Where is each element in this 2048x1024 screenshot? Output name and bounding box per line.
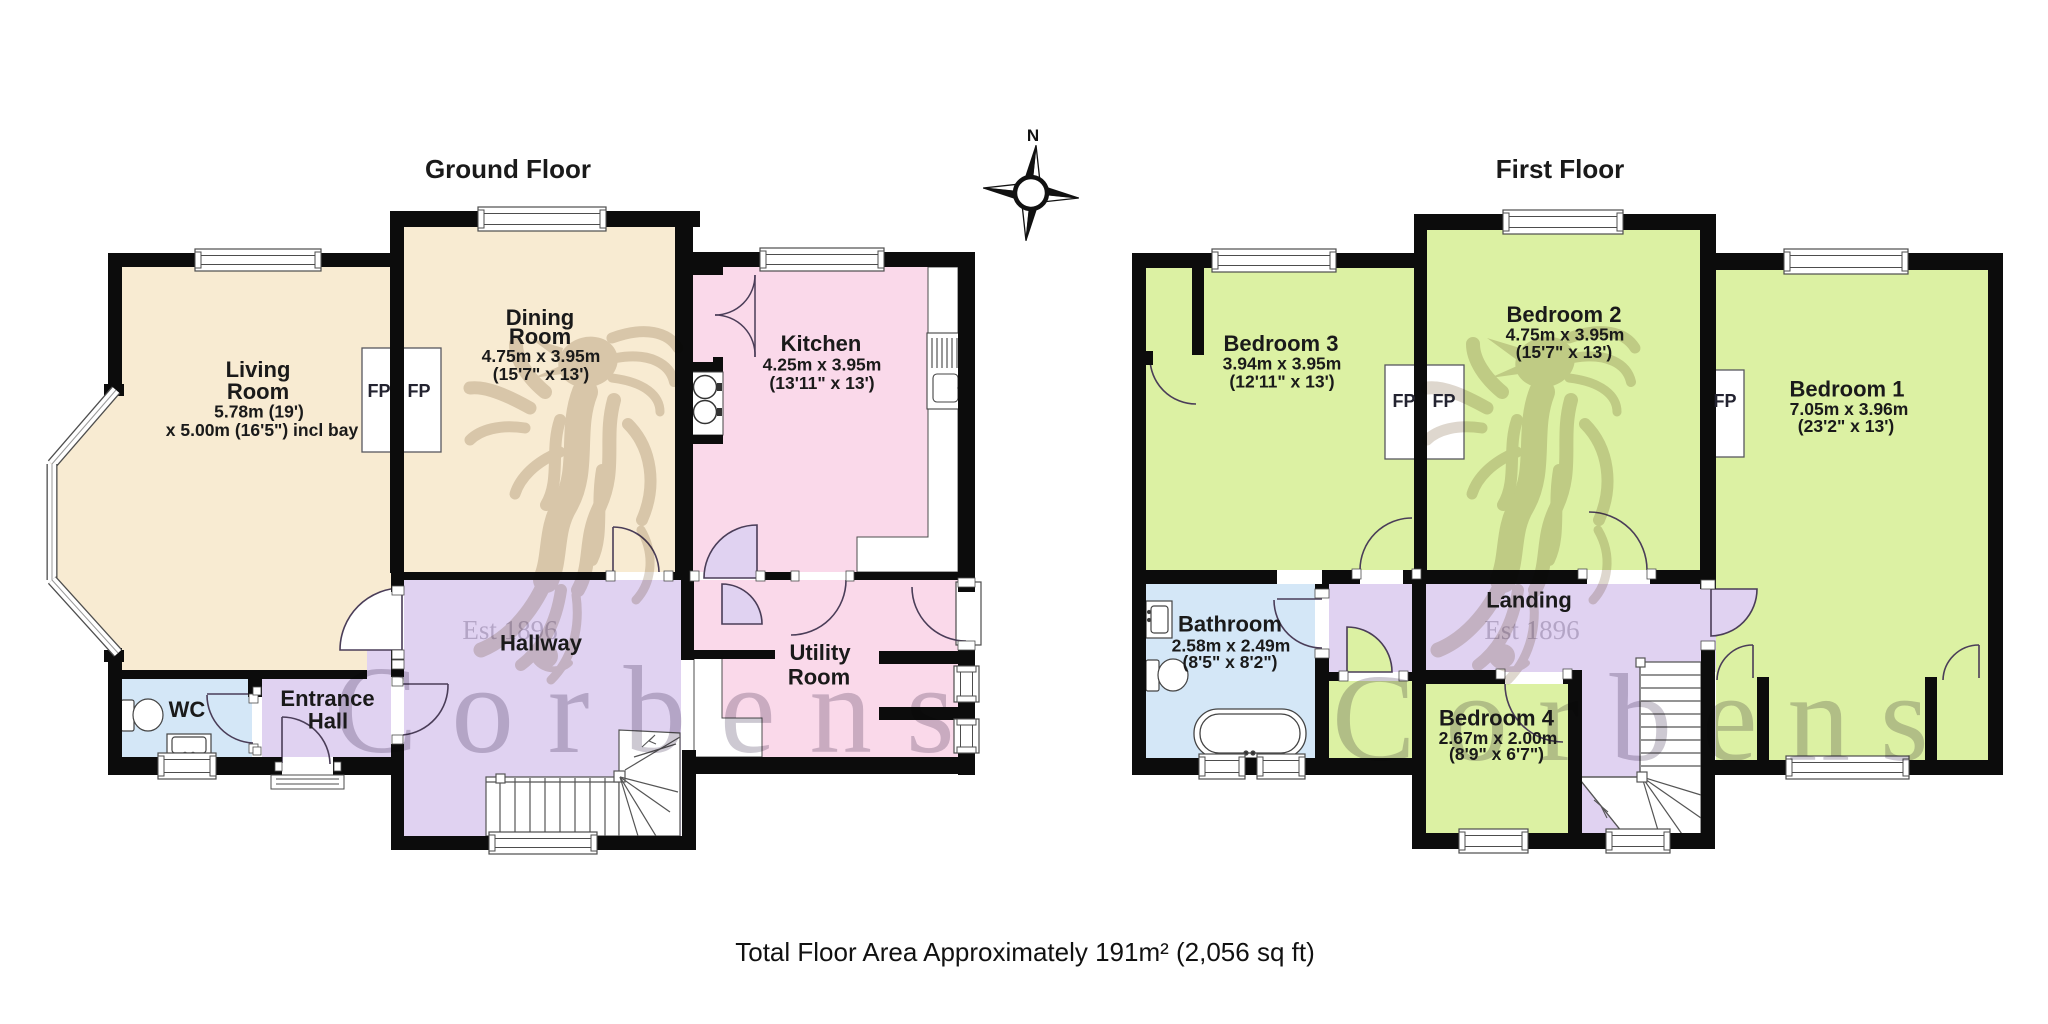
svg-text:Hallway: Hallway — [500, 631, 583, 656]
svg-text:(15'7" x 13'): (15'7" x 13') — [493, 364, 589, 384]
svg-text:Bedroom 4: Bedroom 4 — [1439, 706, 1555, 731]
svg-text:FP: FP — [1392, 391, 1415, 411]
svg-text:Corbens: Corbens — [1332, 650, 1959, 788]
svg-text:5.78m (19'): 5.78m (19') — [214, 402, 304, 422]
svg-text:Kitchen: Kitchen — [781, 331, 862, 356]
svg-text:Utility: Utility — [789, 640, 851, 665]
svg-text:4.75m x 3.95m: 4.75m x 3.95m — [482, 346, 601, 366]
svg-text:(15'7" x 13'): (15'7" x 13') — [1516, 342, 1612, 362]
svg-text:Room: Room — [227, 379, 289, 404]
svg-text:Bedroom 2: Bedroom 2 — [1507, 302, 1622, 327]
svg-text:Room: Room — [788, 665, 850, 690]
svg-text:x 5.00m (16'5") incl bay: x 5.00m (16'5") incl bay — [166, 420, 359, 440]
svg-text:Landing: Landing — [1486, 588, 1572, 613]
svg-text:Bedroom 3: Bedroom 3 — [1224, 331, 1339, 356]
svg-text:Total Floor Area Approximately: Total Floor Area Approximately 191m² (2,… — [735, 937, 1315, 967]
svg-text:Entrance: Entrance — [280, 686, 374, 711]
svg-text:FP: FP — [407, 381, 430, 401]
svg-text:WC: WC — [169, 697, 206, 722]
svg-text:Ground Floor: Ground Floor — [425, 154, 591, 184]
svg-text:(8'5" x 8'2"): (8'5" x 8'2") — [1183, 652, 1278, 672]
svg-text:Est 1896: Est 1896 — [1484, 615, 1579, 645]
svg-text:Corbens: Corbens — [334, 642, 989, 780]
svg-text:(13'11" x 13'): (13'11" x 13') — [769, 373, 874, 393]
svg-text:N: N — [1027, 126, 1039, 145]
svg-text:(8'9" x 6'7"): (8'9" x 6'7") — [1449, 744, 1544, 764]
svg-text:Bedroom 1: Bedroom 1 — [1790, 377, 1905, 402]
svg-text:First Floor: First Floor — [1496, 154, 1625, 184]
svg-text:4.25m x 3.95m: 4.25m x 3.95m — [763, 355, 882, 375]
svg-text:(23'2" x 13'): (23'2" x 13') — [1798, 416, 1894, 436]
svg-text:FP: FP — [367, 381, 390, 401]
svg-text:Hall: Hall — [308, 709, 348, 734]
svg-text:FP: FP — [1432, 391, 1455, 411]
svg-text:Bathroom: Bathroom — [1178, 612, 1282, 637]
svg-text:(12'11" x 13'): (12'11" x 13') — [1229, 372, 1334, 392]
svg-text:FP: FP — [1713, 391, 1736, 411]
svg-text:3.94m x 3.95m: 3.94m x 3.95m — [1223, 354, 1342, 374]
